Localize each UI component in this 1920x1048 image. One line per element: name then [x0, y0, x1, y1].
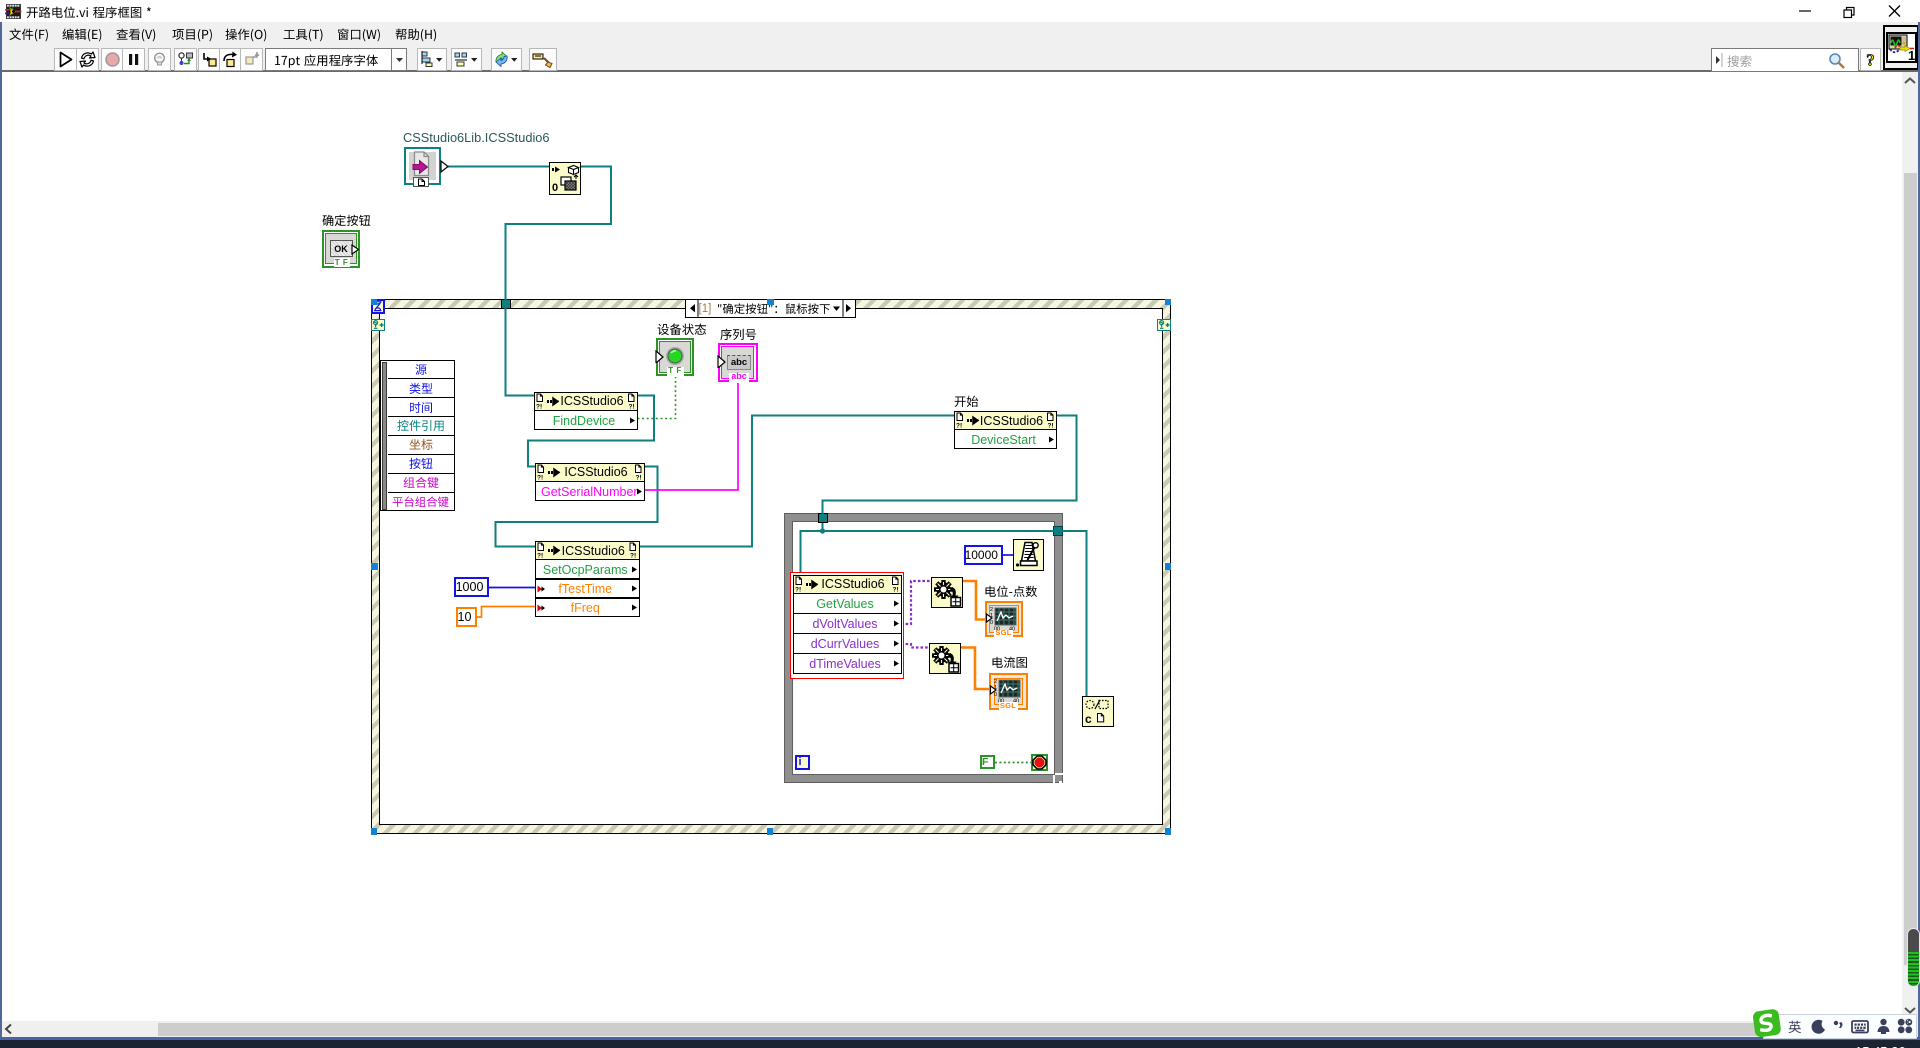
svg-text:?!: ?! — [795, 586, 801, 593]
svg-text:?!: ?! — [1048, 423, 1054, 430]
svg-text:?!: ?! — [536, 403, 542, 410]
svg-text:?!: ?! — [537, 474, 543, 481]
svg-text:0: 0 — [552, 182, 558, 194]
svg-text:0: 0 — [994, 692, 997, 698]
svg-text:?: ? — [1866, 50, 1875, 69]
svg-text:?!: ?! — [956, 423, 962, 430]
svg-text:?!: ?! — [630, 553, 636, 560]
svg-text:?!: ?! — [629, 403, 635, 410]
svg-text:?!: ?! — [892, 586, 898, 593]
svg-text:0: 0 — [990, 620, 993, 626]
svg-text:1: 1 — [1908, 48, 1915, 63]
svg-text:?!: ?! — [537, 553, 543, 560]
svg-text:c: c — [1085, 712, 1092, 726]
svg-text:?!: ?! — [636, 474, 642, 481]
